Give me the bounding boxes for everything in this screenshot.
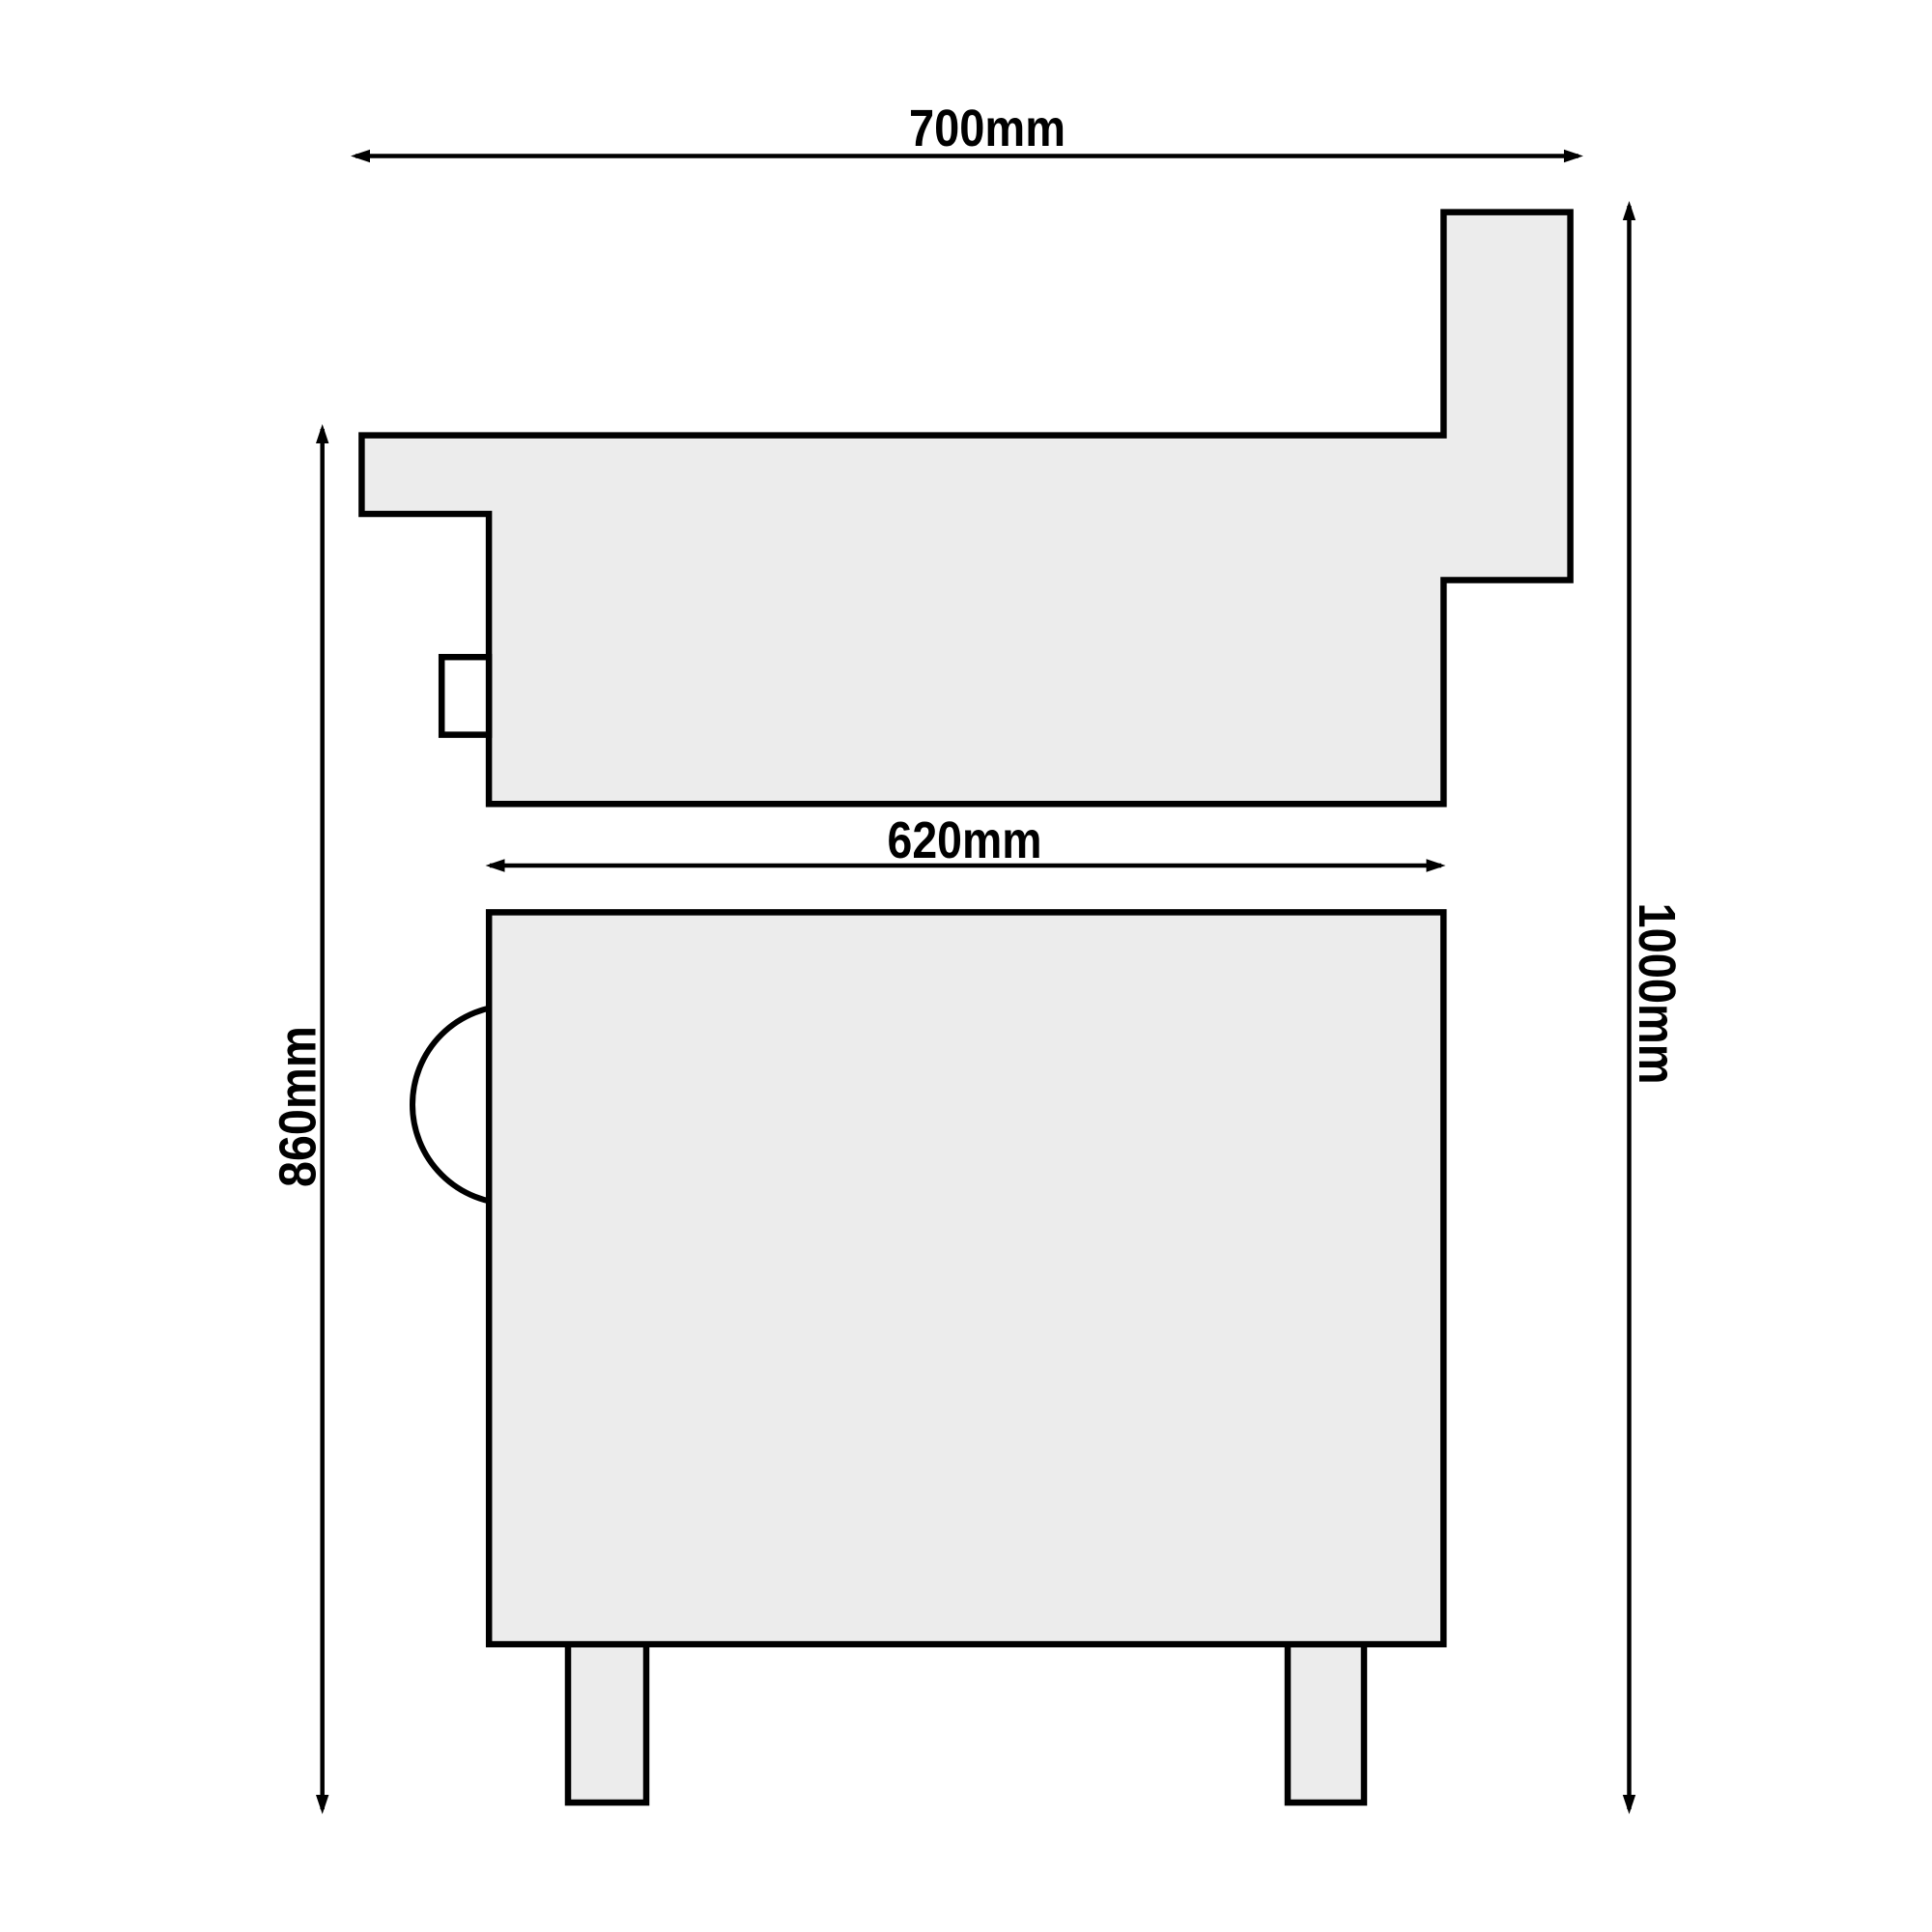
svg-text:700mm: 700mm [909, 99, 1065, 157]
svg-text:860mm: 860mm [270, 1026, 327, 1187]
svg-text:620mm: 620mm [888, 811, 1042, 869]
svg-text:1000mm: 1000mm [1628, 903, 1686, 1085]
